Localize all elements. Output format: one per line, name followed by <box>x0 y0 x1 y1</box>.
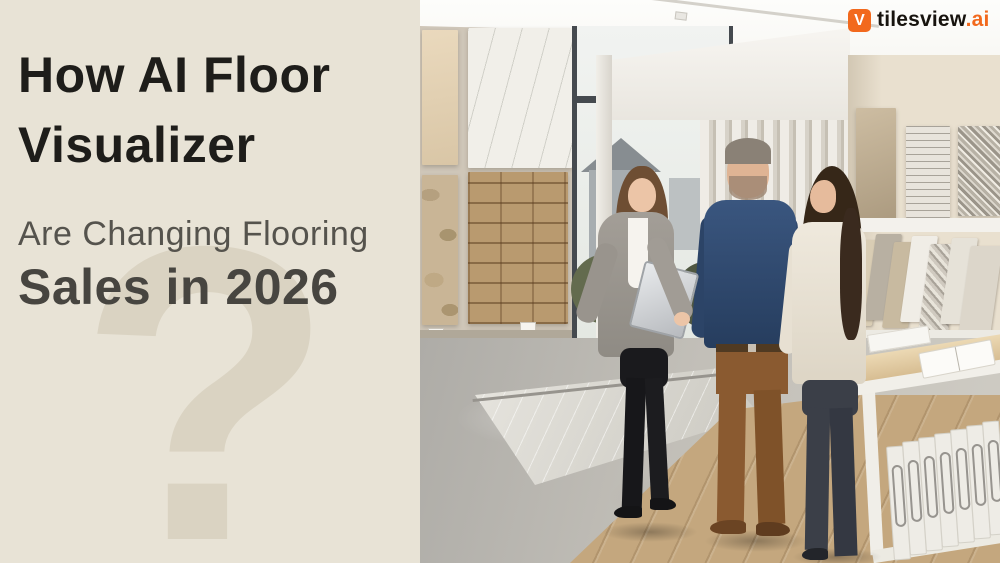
subheadline-line1: Are Changing Flooring <box>18 215 369 254</box>
cream-marble-tile-panel <box>422 30 458 165</box>
man-beard <box>729 176 767 200</box>
man-leg <box>754 390 786 525</box>
subheadline-line2: Sales in 2026 <box>18 258 339 316</box>
headline-line2: Visualizer <box>18 110 330 180</box>
man-shoe <box>756 522 790 536</box>
man-leg <box>717 390 746 522</box>
white-marble-tile-panel <box>468 28 572 168</box>
man-shoe <box>710 520 746 534</box>
logo-brand: tilesview <box>877 8 966 31</box>
headline: How AI Floor Visualizer <box>18 40 330 180</box>
logo-text: tilesview.ai <box>877 8 990 32</box>
saleswoman-face <box>628 178 656 212</box>
logo-v-icon: V <box>848 9 871 32</box>
headline-line1: How AI Floor <box>18 40 330 110</box>
man-trousers <box>716 352 788 394</box>
person-shadow <box>602 522 698 542</box>
brand-logo[interactable]: V tilesview.ai <box>848 8 990 32</box>
man-belt-buckle <box>748 344 756 352</box>
woman-face <box>810 180 836 213</box>
logo-suffix: .ai <box>966 8 990 31</box>
rough-stone-tile-panel <box>422 175 458 325</box>
beige-stone-wall-panel <box>856 108 896 222</box>
saleswoman-hand <box>674 312 690 326</box>
track-light <box>675 11 688 20</box>
white-brick-wall-panel <box>906 126 950 218</box>
showroom-photo <box>420 0 1000 563</box>
title-panel: ? How AI Floor Visualizer Are Changing F… <box>0 0 420 563</box>
saleswoman-heel-shoe <box>614 506 642 518</box>
man-hair <box>725 138 771 164</box>
mosaic-wall-panel <box>958 126 1000 216</box>
woman-leg <box>805 408 830 550</box>
sample-rack-header <box>850 218 1000 232</box>
stacked-stone-tile-panel <box>468 172 568 324</box>
saleswoman-heel-shoe <box>650 498 676 510</box>
woman-hair-strand <box>840 208 862 340</box>
banner: ? How AI Floor Visualizer Are Changing F… <box>0 0 1000 563</box>
woman-shoe <box>802 548 828 560</box>
